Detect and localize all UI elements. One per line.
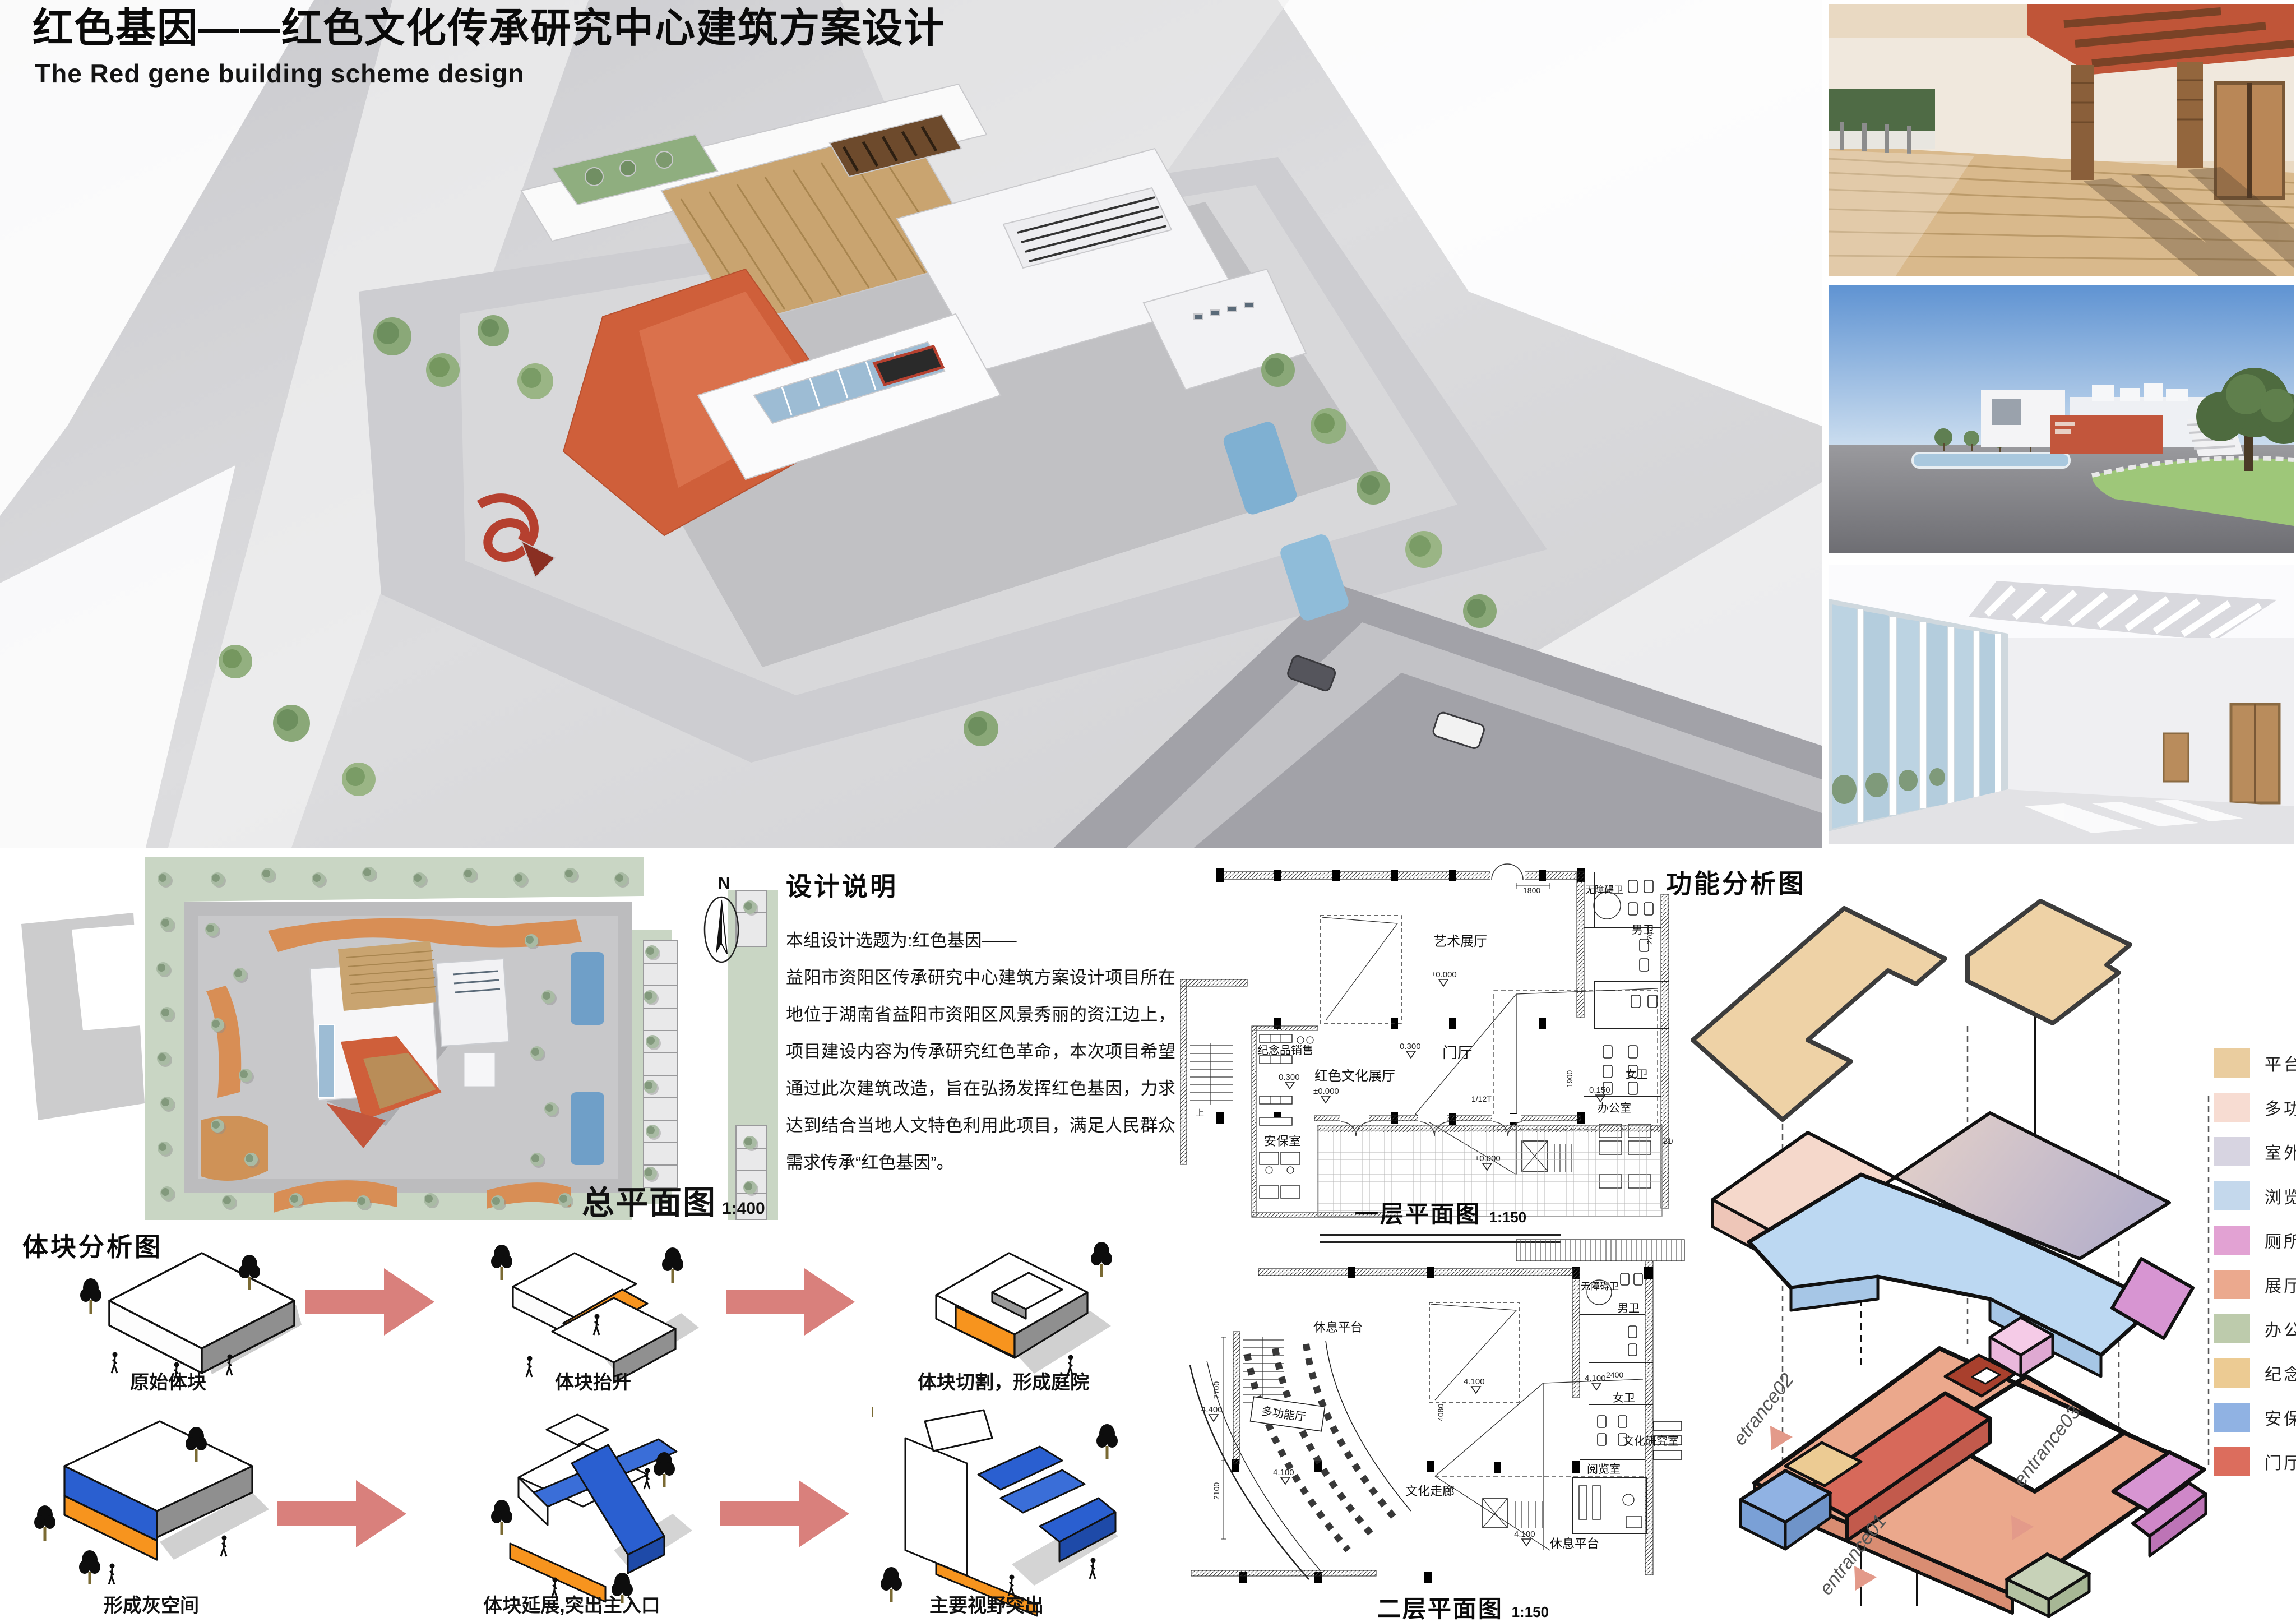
presentation-board: 红色基因——红色文化传承研究中心建筑方案设计 The Red gene buil… xyxy=(0,0,2296,1622)
legend-swatch xyxy=(2214,1358,2250,1388)
legend-label: 厕所 xyxy=(2265,1228,2296,1253)
legend-swatch xyxy=(2214,1314,2250,1343)
function-legend: 平台 多功能厅 室外平台 浏览空间 厕所 展厅 办公 纪念品销售 安保室 门厅 xyxy=(2214,1047,2296,1496)
legend-label: 门厅 xyxy=(2265,1449,2296,1474)
svg-text:±0.000: ±0.000 xyxy=(1313,1087,1339,1096)
svg-text:休息平台: 休息平台 xyxy=(1313,1320,1363,1334)
block-step-lift xyxy=(479,1233,703,1385)
block-step-view xyxy=(872,1407,1130,1618)
legend-swatch xyxy=(2214,1137,2250,1166)
svg-text:无障碍卫: 无障碍卫 xyxy=(1581,1281,1619,1292)
arrow-step-2 xyxy=(726,1268,855,1336)
svg-text:女卫: 女卫 xyxy=(1613,1392,1635,1404)
svg-text:艺术展厅: 艺术展厅 xyxy=(1433,934,1487,949)
site-plan-title: 总平面图 1:400 xyxy=(582,1176,765,1223)
design-notes-body: 本组设计选题为:红色基因—— 益阳市资阳区传承研究中心建筑方案设计项目所在地位于… xyxy=(786,922,1175,1181)
block-step-greyspace xyxy=(31,1413,272,1584)
design-notes-intro: 本组设计选题为:红色基因—— xyxy=(786,922,1175,959)
svg-text:4.100: 4.100 xyxy=(1464,1377,1485,1387)
legend-swatch xyxy=(2214,1048,2250,1078)
svg-text:4.100: 4.100 xyxy=(1585,1374,1606,1383)
svg-text:休息平台: 休息平台 xyxy=(1550,1537,1599,1551)
page-subtitle: The Red gene building scheme design xyxy=(35,58,524,89)
legend-label: 浏览空间 xyxy=(2265,1184,2296,1208)
block-label-2: 体块抬升 xyxy=(555,1367,631,1394)
legend-label: 多功能厅 xyxy=(2265,1095,2296,1120)
legend-label: 室外平台 xyxy=(2265,1139,2296,1164)
legend-swatch xyxy=(2214,1093,2250,1122)
hero-aerial-render xyxy=(0,0,1822,848)
svg-text:男卫: 男卫 xyxy=(1617,1302,1640,1315)
svg-text:文化研究室: 文化研究室 xyxy=(1623,1435,1679,1448)
arrow-step-4 xyxy=(720,1480,849,1547)
svg-text:1800: 1800 xyxy=(1523,886,1540,895)
legend-swatch xyxy=(2214,1270,2250,1299)
svg-text:2700: 2700 xyxy=(1645,927,1654,945)
svg-text:文化走廊: 文化走廊 xyxy=(1405,1484,1455,1498)
svg-text:N: N xyxy=(718,874,730,893)
svg-text:办公室: 办公室 xyxy=(1598,1102,1631,1115)
svg-text:2100: 2100 xyxy=(1663,1136,1673,1145)
legend-label: 纪念品销售 xyxy=(2265,1361,2296,1385)
svg-text:0.300: 0.300 xyxy=(1279,1073,1300,1082)
svg-text:安保室: 安保室 xyxy=(1264,1134,1301,1148)
design-notes-paragraph: 益阳市资阳区传承研究中心建筑方案设计项目所在地位于湖南省益阳市资阳区风景秀丽的资… xyxy=(786,959,1175,1181)
arrow-step-3 xyxy=(277,1480,406,1547)
block-step-extend xyxy=(479,1410,703,1603)
legend-label: 展厅 xyxy=(2265,1272,2296,1297)
page-title: 红色基因——红色文化传承研究中心建筑方案设计 xyxy=(33,8,945,50)
legend-swatch xyxy=(2214,1403,2250,1432)
floor-plan-1: 上 xyxy=(1180,861,1673,1225)
legend-swatch xyxy=(2214,1226,2250,1255)
legend-swatch xyxy=(2214,1447,2250,1476)
block-label-3: 体块切割，形成庭院 xyxy=(918,1367,1089,1394)
svg-text:1900: 1900 xyxy=(1565,1070,1574,1088)
svg-text:阅览室: 阅览室 xyxy=(1587,1463,1621,1476)
function-analysis-diagram: etrance02 entrance03 entrance01 xyxy=(1676,872,2237,1618)
svg-text:4.400: 4.400 xyxy=(1201,1405,1223,1415)
floor-plan-2-title: 二层平面图 1:150 xyxy=(1343,1590,1584,1622)
legend-swatch xyxy=(2214,1181,2250,1210)
svg-text:4080: 4080 xyxy=(1436,1404,1445,1421)
block-label-6: 主要视野突出 xyxy=(929,1590,1044,1618)
svg-text:±0.000: ±0.000 xyxy=(1431,970,1457,979)
legend-label: 办公 xyxy=(2265,1316,2296,1341)
svg-text:1/12T: 1/12T xyxy=(1471,1094,1492,1103)
svg-text:2100: 2100 xyxy=(1212,1482,1221,1500)
render-exterior-view xyxy=(1829,285,2294,553)
block-step-original xyxy=(62,1236,308,1382)
block-label-5: 体块延展,突出主入口 xyxy=(483,1590,660,1618)
arrow-step-1 xyxy=(305,1268,434,1336)
block-label-4: 形成灰空间 xyxy=(104,1590,199,1618)
svg-text:上: 上 xyxy=(1196,1108,1204,1118)
svg-text:2400: 2400 xyxy=(1606,1370,1623,1379)
block-step-courtyard xyxy=(902,1233,1121,1385)
svg-text:4.100: 4.100 xyxy=(1273,1468,1294,1477)
svg-text:红色文化展厅: 红色文化展厅 xyxy=(1314,1069,1395,1084)
svg-text:门厅: 门厅 xyxy=(1442,1045,1473,1061)
floor-plan-2: 休息平台 文化走廊 休息平台 阅览室 文化研究室 无障碍卫 男卫 女卫 多功能厅… xyxy=(1180,1236,1687,1585)
legend-label: 安保室 xyxy=(2265,1405,2296,1430)
svg-text:±0.000: ±0.000 xyxy=(1475,1154,1501,1163)
render-interior-corridor xyxy=(1829,565,2294,844)
svg-text:7700: 7700 xyxy=(1212,1381,1221,1399)
svg-text:0.300: 0.300 xyxy=(1400,1042,1421,1051)
svg-text:女卫: 女卫 xyxy=(1626,1068,1648,1081)
legend-label: 平台 xyxy=(2265,1051,2296,1075)
svg-text:4.100: 4.100 xyxy=(1514,1529,1535,1539)
svg-text:无障碍卫: 无障碍卫 xyxy=(1585,885,1623,895)
block-label-1: 原始体块 xyxy=(130,1367,206,1394)
svg-text:0.150: 0.150 xyxy=(1589,1085,1610,1095)
svg-text:纪念品销售: 纪念品销售 xyxy=(1257,1043,1313,1057)
site-plan: N xyxy=(4,857,778,1220)
render-roof-terrace xyxy=(1829,4,2294,276)
design-notes-title: 设计说明 xyxy=(786,866,898,903)
